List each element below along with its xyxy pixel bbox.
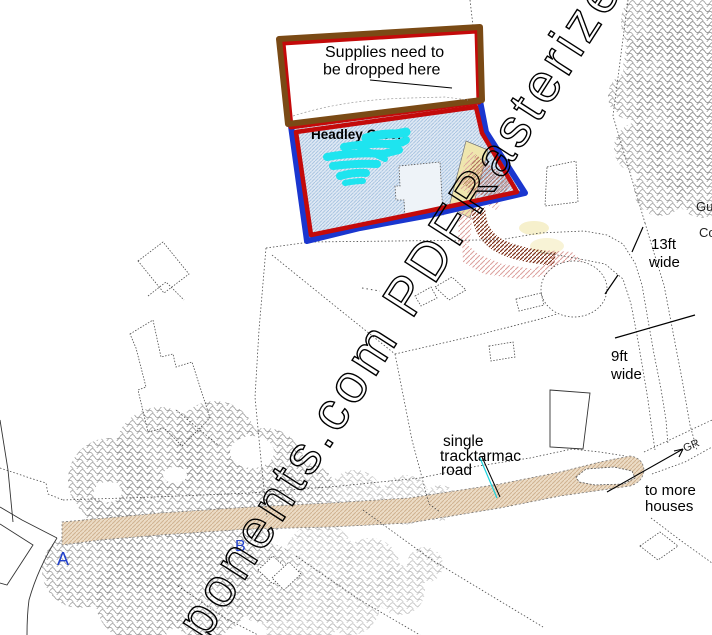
- svg-text:wide: wide: [610, 366, 642, 383]
- svg-text:A: A: [57, 549, 69, 569]
- svg-text:Gu: Gu: [696, 199, 712, 214]
- svg-text:to more: to more: [645, 482, 696, 499]
- svg-text:be dropped here: be dropped here: [323, 62, 441, 79]
- svg-text:houses: houses: [645, 498, 693, 515]
- svg-text:wide: wide: [648, 254, 680, 271]
- svg-text:road: road: [441, 462, 472, 479]
- svg-text:13ft: 13ft: [651, 236, 677, 253]
- svg-text:Co: Co: [699, 225, 712, 240]
- svg-text:Supplies need to: Supplies need to: [325, 44, 444, 61]
- svg-text:9ft: 9ft: [611, 348, 629, 365]
